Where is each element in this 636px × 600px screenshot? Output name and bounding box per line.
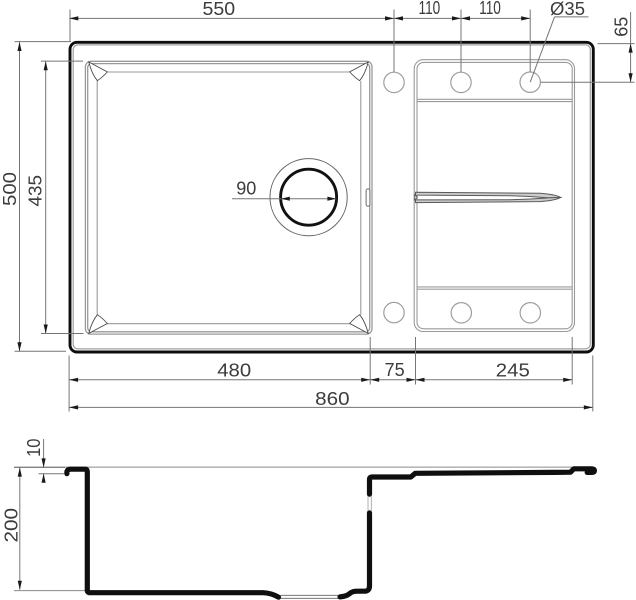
- svg-text:75: 75: [385, 359, 405, 380]
- svg-text:Ø35: Ø35: [550, 0, 585, 19]
- svg-text:110: 110: [419, 0, 441, 18]
- svg-text:65: 65: [610, 17, 631, 37]
- svg-text:245: 245: [496, 359, 530, 380]
- svg-text:500: 500: [0, 172, 20, 206]
- svg-text:860: 860: [315, 388, 349, 409]
- svg-text:435: 435: [24, 175, 45, 207]
- svg-text:550: 550: [203, 0, 236, 19]
- svg-text:480: 480: [217, 359, 251, 380]
- svg-text:110: 110: [479, 0, 501, 18]
- svg-text:90: 90: [236, 177, 256, 198]
- svg-text:200: 200: [1, 508, 22, 543]
- svg-text:10: 10: [23, 439, 44, 457]
